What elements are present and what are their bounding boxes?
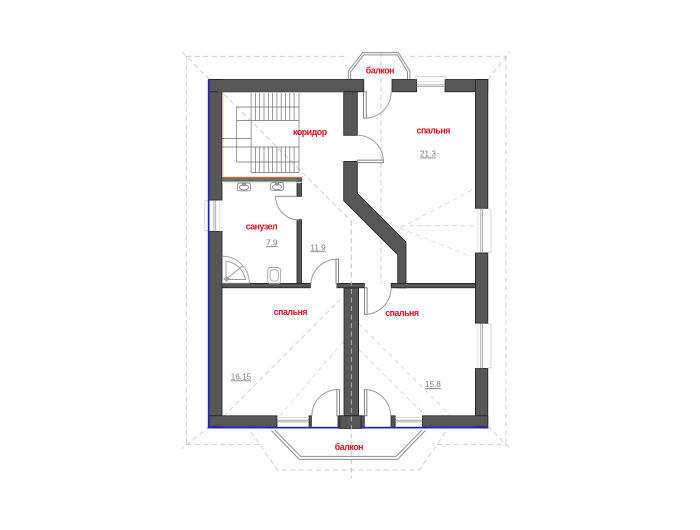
svg-text:16.15: 16.15 bbox=[231, 372, 252, 381]
svg-text:санузел: санузел bbox=[246, 221, 278, 231]
svg-text:11.9: 11.9 bbox=[310, 243, 326, 252]
svg-text:спальня: спальня bbox=[274, 307, 308, 317]
svg-text:коридор: коридор bbox=[293, 127, 328, 137]
svg-text:спальня: спальня bbox=[385, 308, 419, 318]
svg-text:балкон: балкон bbox=[366, 65, 394, 75]
svg-text:спальня: спальня bbox=[417, 126, 451, 136]
svg-text:7.9: 7.9 bbox=[266, 238, 278, 247]
svg-text:балкон: балкон bbox=[335, 442, 363, 452]
svg-text:15.8: 15.8 bbox=[425, 380, 441, 389]
svg-text:21.3: 21.3 bbox=[420, 150, 436, 159]
